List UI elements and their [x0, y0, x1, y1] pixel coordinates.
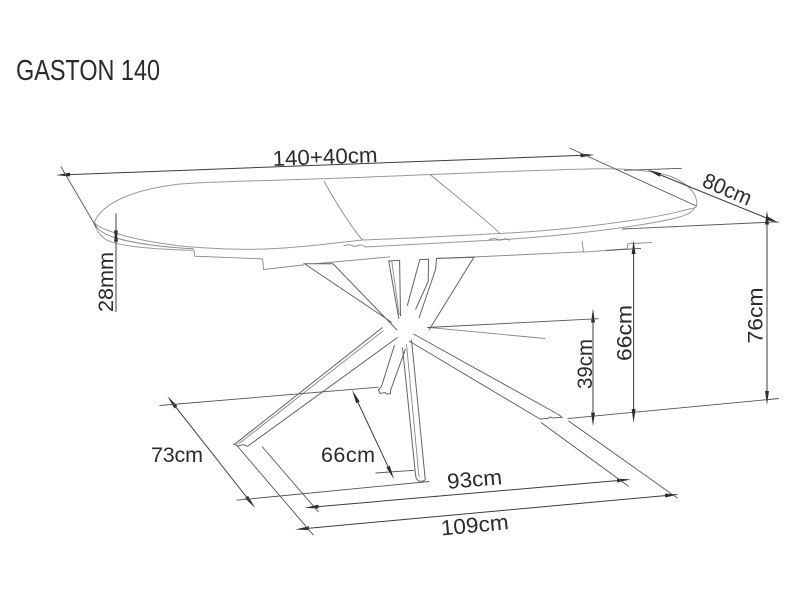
svg-text:66cm: 66cm	[613, 305, 637, 361]
svg-text:28mm: 28mm	[94, 252, 118, 312]
svg-text:76cm: 76cm	[744, 288, 768, 344]
svg-text:140+40cm: 140+40cm	[272, 143, 378, 171]
svg-text:66cm: 66cm	[321, 443, 375, 467]
svg-text:39cm: 39cm	[573, 339, 597, 389]
svg-text:73cm: 73cm	[151, 443, 203, 467]
svg-text:80cm: 80cm	[699, 169, 755, 211]
svg-text:93cm: 93cm	[446, 465, 503, 494]
svg-text:109cm: 109cm	[440, 510, 510, 540]
svg-text:GASTON 140: GASTON 140	[16, 55, 160, 87]
